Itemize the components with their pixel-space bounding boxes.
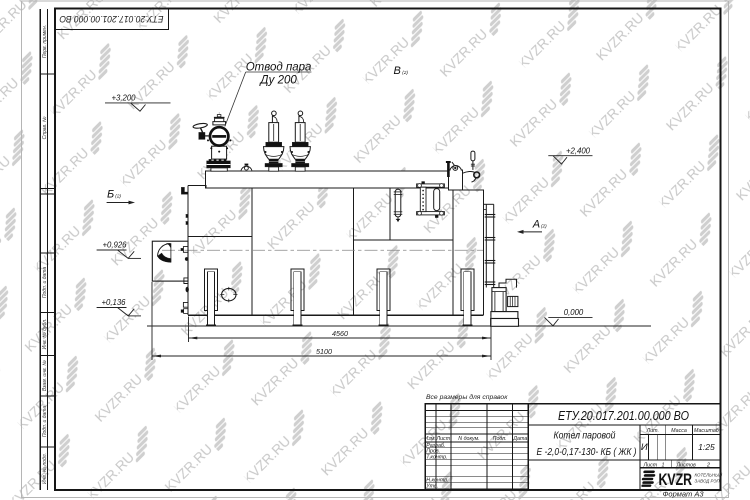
- svg-text:4560: 4560: [332, 329, 348, 338]
- svg-text:Изм.: Изм.: [425, 436, 436, 442]
- svg-text:Котел паровой: Котел паровой: [554, 430, 616, 442]
- svg-text:Е -2,0-0,17-130- КБ ( ЖК ): Е -2,0-0,17-130- КБ ( ЖК ): [537, 446, 637, 458]
- svg-text:Лист: Лист: [435, 436, 450, 442]
- svg-text:+0,136: +0,136: [101, 298, 126, 307]
- svg-text:0,000: 0,000: [564, 308, 584, 317]
- svg-text:(2): (2): [541, 223, 547, 228]
- svg-text:Дата: Дата: [512, 436, 527, 442]
- svg-text:КОТЕЛЬНЫЙ: КОТЕЛЬНЫЙ: [695, 473, 723, 478]
- svg-text:Все размеры для справок: Все размеры для справок: [426, 393, 508, 401]
- svg-text:1: 1: [662, 462, 665, 468]
- svg-text:Формат А3: Формат А3: [662, 489, 704, 498]
- svg-text:KVZR: KVZR: [659, 471, 693, 489]
- svg-text:И: И: [641, 442, 648, 453]
- svg-text:Взам. инв. №: Взам. инв. №: [42, 360, 48, 392]
- svg-text:Б: Б: [107, 189, 114, 201]
- svg-text:Подп. и дата: Подп. и дата: [42, 267, 48, 299]
- svg-text:Подп. и дата: Подп. и дата: [42, 406, 48, 438]
- svg-text:ЕТУ.20.017.201.00.000 ВО: ЕТУ.20.017.201.00.000 ВО: [60, 14, 164, 24]
- svg-text:Ду 200: Ду 200: [258, 74, 297, 86]
- svg-text:Инв. № подл.: Инв. № подл.: [42, 453, 48, 484]
- svg-text:1:25: 1:25: [698, 442, 715, 452]
- svg-text:+2,400: +2,400: [566, 146, 591, 155]
- svg-text:Перв. примен.: Перв. примен.: [42, 25, 48, 58]
- svg-text:Справ. №: Справ. №: [42, 116, 48, 139]
- svg-text:Подп.: Подп.: [493, 436, 507, 442]
- svg-text:Лист: Лист: [643, 462, 658, 468]
- svg-text:А: А: [532, 218, 540, 230]
- svg-text:+3,200: +3,200: [111, 94, 136, 103]
- svg-text:2: 2: [706, 462, 710, 468]
- svg-text:Утв.: Утв.: [426, 483, 438, 489]
- svg-text:Листов: Листов: [676, 462, 697, 468]
- svg-text:+0,926: +0,926: [102, 241, 127, 250]
- svg-text:5100: 5100: [316, 347, 332, 356]
- svg-text:В: В: [394, 65, 401, 77]
- svg-text:Масса: Масса: [671, 428, 687, 434]
- svg-text:Т.контр.: Т.контр.: [426, 455, 447, 461]
- svg-text:N докум.: N докум.: [458, 436, 479, 442]
- svg-text:ЗАВОД РЭП: ЗАВОД РЭП: [695, 478, 721, 483]
- svg-text:(2): (2): [402, 70, 408, 75]
- svg-text:Масштаб: Масштаб: [694, 428, 720, 434]
- svg-text:(2): (2): [115, 194, 121, 199]
- svg-text:ЕТУ.20.017.201.00.000 ВО: ЕТУ.20.017.201.00.000 ВО: [558, 408, 689, 423]
- svg-text:Лит.: Лит.: [646, 428, 659, 434]
- svg-text:Инв. № дубл.: Инв. № дубл.: [42, 319, 48, 350]
